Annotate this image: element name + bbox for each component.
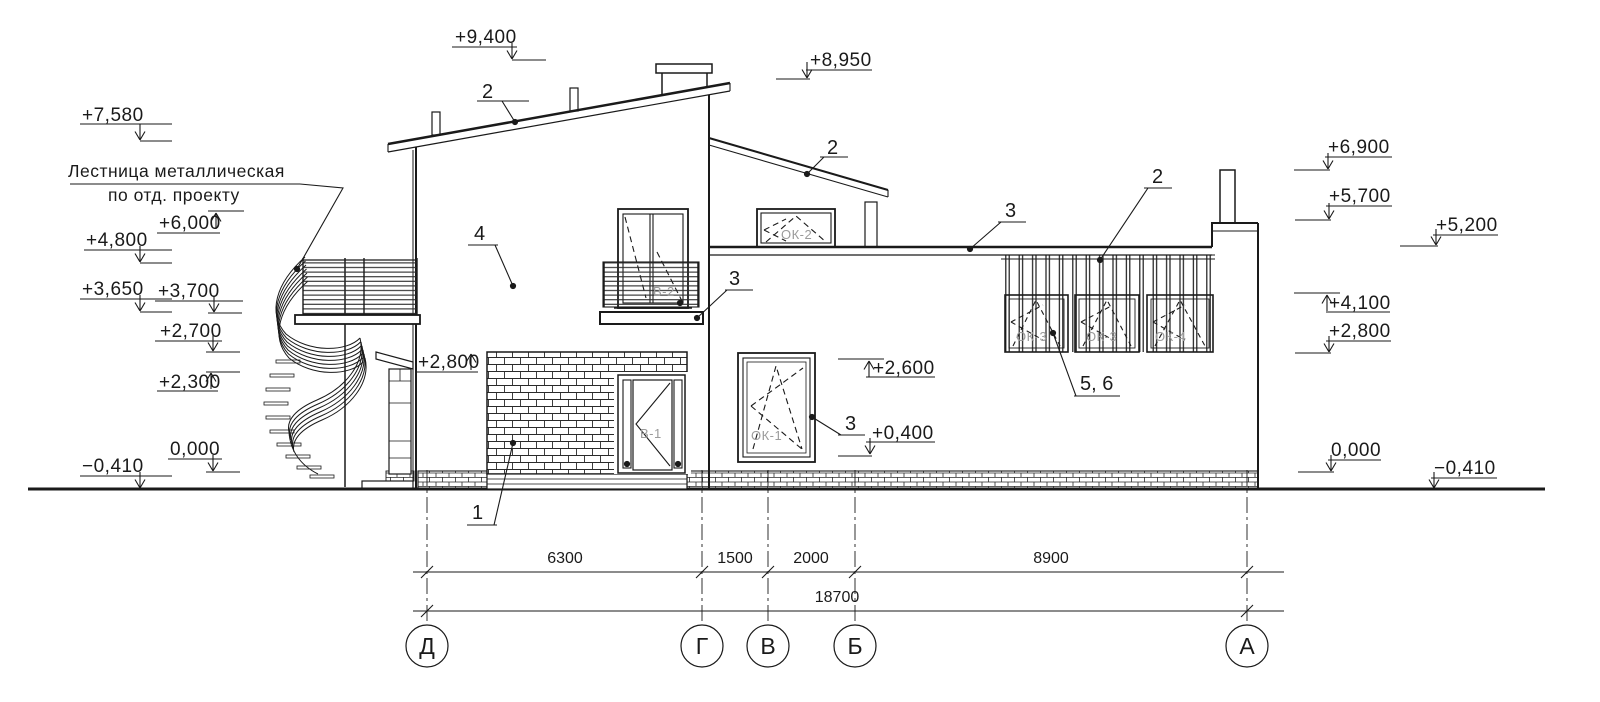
axis-bubble-b: Б [847,635,862,658]
elevation-mark-2700: +2,700 [160,322,222,341]
elevation-mark-9400: +9,400 [455,28,517,47]
elevation-mark-5700: +5,700 [1329,187,1391,206]
elevation-drawing: Лестница металлическая по отд. проекту +… [0,0,1600,702]
elevation-mark-0400: +0,400 [872,424,934,443]
axis-bubbles [406,625,1268,667]
axis-bubble-d: Д [419,635,435,658]
axis-bubble-v: В [760,635,775,658]
elevation-mark-6000: +6,000 [159,214,221,233]
main-roof [388,83,730,152]
window-tag-ok3a: ОК-3 [1016,330,1047,343]
elevation-mark-2800-right: +2,800 [1329,322,1391,341]
window-ok1 [738,353,815,462]
dimension-span3: 2000 [793,551,829,567]
callout-balcony: 3 [729,269,740,289]
parapet [1212,170,1258,247]
dimension-span1: 6300 [547,551,583,567]
window-tag-v1: В-1 [640,427,662,440]
elevation-mark-5200: +5,200 [1436,216,1498,235]
window-tag-v2: В-2 [653,285,675,298]
window-tag-ok1: ОК-1 [751,429,782,442]
elevation-mark-0000-left: 0,000 [170,440,220,459]
callout-wall: 4 [474,224,485,244]
callout-flat-roof: 3 [1005,201,1016,221]
elevation-mark-4800: +4,800 [86,231,148,250]
landing-slab [295,315,420,324]
stair-note-line2: по отд. проекту [108,187,240,205]
dimension-span4: 8900 [1033,551,1069,567]
elevation-mark-neg0410-left: −0,410 [82,457,144,476]
callout-screen: 2 [1152,167,1163,187]
porch [362,352,413,489]
callout-screen-windows: 5, 6 [1080,374,1113,394]
elevation-mark-3700: +3,700 [158,282,220,301]
callout-roof-main: 2 [482,82,493,102]
stair-note-line1: Лестница металлическая [68,163,285,181]
window-tag-ok3b: ОК-3 [1086,330,1117,343]
landing-railing [303,260,417,314]
elevation-mark-8950: +8,950 [810,51,872,70]
window-tag-ok2: ОК-2 [781,228,812,241]
callout-window: 3 [845,414,856,434]
elevation-mark-4100: +4,100 [1329,294,1391,313]
elevation-mark-7580: +7,580 [82,106,144,125]
elevation-mark-2600: +2,600 [873,359,935,378]
axis-bubble-a: А [1239,635,1254,658]
drawing-linework [0,0,1600,702]
elevation-mark-neg0410-right: −0,410 [1434,459,1496,478]
elevation-mark-6900: +6,900 [1328,138,1390,157]
elevation-mark-2300: +2,300 [159,373,221,392]
dimension-span2: 1500 [717,551,753,567]
chimney-right [1220,170,1235,223]
dimension-total: 18700 [815,590,860,606]
window-tag-ok4: ОК-4 [1155,330,1186,343]
callout-roof-low: 2 [827,138,838,158]
flat-roof [708,247,1212,255]
elevation-mark-3650: +3,650 [82,280,144,299]
elevation-mark-2800-facade: +2,800 [418,353,480,372]
callout-brick: 1 [472,503,483,523]
elevation-mark-0000-right: 0,000 [1331,441,1381,460]
axis-bubble-g: Г [696,635,708,658]
balcony [600,209,703,324]
entrance-door [614,372,691,474]
